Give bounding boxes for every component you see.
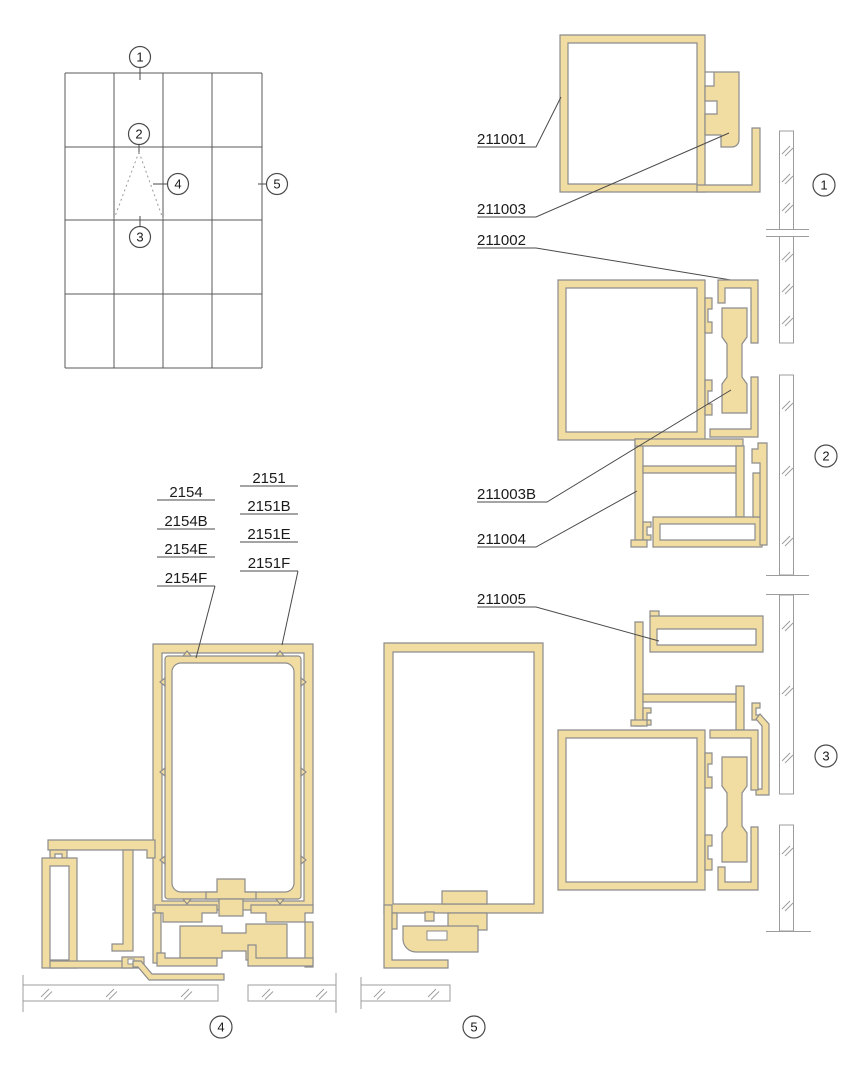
decorative-notches [160, 651, 306, 904]
part-label-2151F: 2151F [248, 555, 291, 572]
glass-pane [23, 985, 218, 1001]
glass-pane [248, 985, 336, 1001]
section-1-detail: 1 211001 211003 211002 [477, 35, 835, 343]
marker-number: 5 [470, 1020, 477, 1035]
frame-profile [558, 280, 705, 440]
elevation-marker-5: 5 [267, 174, 288, 195]
glass-pane-2 [766, 375, 809, 595]
small-tab [425, 912, 434, 921]
elevation-diagram: 1 2 3 4 5 [65, 47, 288, 369]
part-label-2151E: 2151E [247, 526, 290, 543]
part-label-211003B: 211003B [477, 486, 536, 503]
jamb-hollow [42, 858, 77, 968]
glass-break-lines [766, 576, 809, 595]
transom-box-211005 [650, 616, 763, 652]
glass-pane [361, 985, 450, 1001]
interlock-block-211003B [722, 308, 747, 413]
leader-2151 [282, 571, 298, 645]
part-label-2154E: 2154E [164, 541, 207, 558]
part-label-211005: 211005 [477, 591, 526, 608]
elevation-marker-4: 4 [168, 174, 189, 195]
interlock-block [722, 757, 747, 862]
center-block [206, 879, 256, 899]
section-marker-3: 3 [815, 745, 837, 767]
marker-number: 3 [136, 230, 143, 245]
section-5-detail: 5 [361, 643, 543, 1038]
glass-pane [780, 825, 794, 931]
leader-211005 [477, 607, 659, 641]
section-marker-4: 4 [210, 1016, 232, 1038]
bottom-bump [442, 891, 487, 904]
part-label-2154B: 2154B [164, 513, 207, 530]
mullion-box-211004 [653, 517, 762, 547]
center-stub [219, 899, 243, 916]
marker-number: 4 [174, 177, 181, 192]
marker-number: 2 [822, 449, 829, 464]
transom-riser [736, 686, 744, 730]
stem-foot [631, 540, 647, 547]
marker-number: 1 [820, 178, 827, 193]
frame-tab [705, 380, 712, 415]
mullion-riser [736, 446, 744, 517]
jamb-bottom-bar [50, 961, 133, 968]
frame-tab [705, 298, 712, 333]
interlock-left-upper [155, 905, 217, 922]
elevation-marker-2: 2 [129, 124, 150, 145]
leader-211002 [477, 248, 737, 281]
part-label-2154: 2154 [169, 484, 202, 501]
part-label-211001: 211001 [477, 131, 526, 148]
sash-profile [384, 643, 543, 913]
part-label-2154F: 2154F [165, 570, 208, 587]
glass-pane [780, 131, 794, 230]
opening-direction-lines [114, 152, 163, 219]
transom-web [643, 694, 740, 702]
stem-foot [631, 720, 647, 726]
part-label-2151B: 2151B [247, 498, 290, 515]
section-marker-1: 1 [813, 174, 835, 196]
frame-profile [558, 730, 705, 890]
part-label-2151: 2151 [252, 470, 285, 487]
part-label-211004: 211004 [477, 531, 526, 548]
marker-number: 5 [273, 177, 280, 192]
section-marker-2: 2 [815, 445, 837, 467]
glass-pane-3-upper [780, 595, 794, 794]
technical-drawing-page: 1 2 3 4 5 1 2 [0, 0, 850, 1066]
label-stack-2154: 2154 2154B 2154E 2154F [157, 484, 215, 658]
frame-profile-211001 [560, 35, 705, 192]
marker-number: 1 [136, 50, 143, 65]
interlock-right-upper [251, 905, 313, 922]
glass-pane-5 [361, 977, 450, 1009]
part-label-211003: 211003 [477, 201, 526, 218]
marker-number: 3 [822, 749, 829, 764]
section-3-detail: 3 211005 [477, 591, 837, 932]
mullion-stem [635, 439, 643, 540]
sash-profile-2151 [153, 644, 313, 910]
drawing-canvas: 1 2 3 4 5 1 2 [0, 0, 850, 1066]
insert-profile-2154 [165, 656, 301, 899]
frame-tab [705, 835, 712, 870]
frame-tab [705, 753, 712, 788]
marker-number: 4 [217, 1020, 224, 1035]
elevation-grid [65, 73, 262, 368]
section-marker-5: 5 [463, 1016, 485, 1038]
label-stack-2151: 2151 2151B 2151E 2151F [240, 470, 298, 645]
jamb-inner-wall [112, 850, 133, 951]
glass-pane [780, 237, 794, 344]
section-4-detail: 4 2154 2154B 2154E 2154F 2151 2151B 2151… [23, 470, 336, 1038]
mullion-top-bar [635, 439, 743, 446]
interlock-dumbbell [180, 924, 287, 960]
part-label-211002: 211002 [477, 232, 526, 249]
glass-pane-1 [766, 131, 809, 343]
lump-notch [427, 931, 447, 940]
stem-hook [643, 522, 651, 540]
glass-pane-4-right [248, 973, 336, 1013]
elevation-marker-1: 1 [130, 47, 151, 68]
transom-stem [635, 622, 643, 726]
mullion-web [643, 466, 740, 473]
glass-break-lines [766, 230, 809, 237]
marker-number: 2 [135, 127, 142, 142]
glass-pane-3-lower [766, 825, 811, 932]
elevation-marker-3: 3 [130, 227, 151, 248]
jamb-clip [50, 850, 67, 858]
